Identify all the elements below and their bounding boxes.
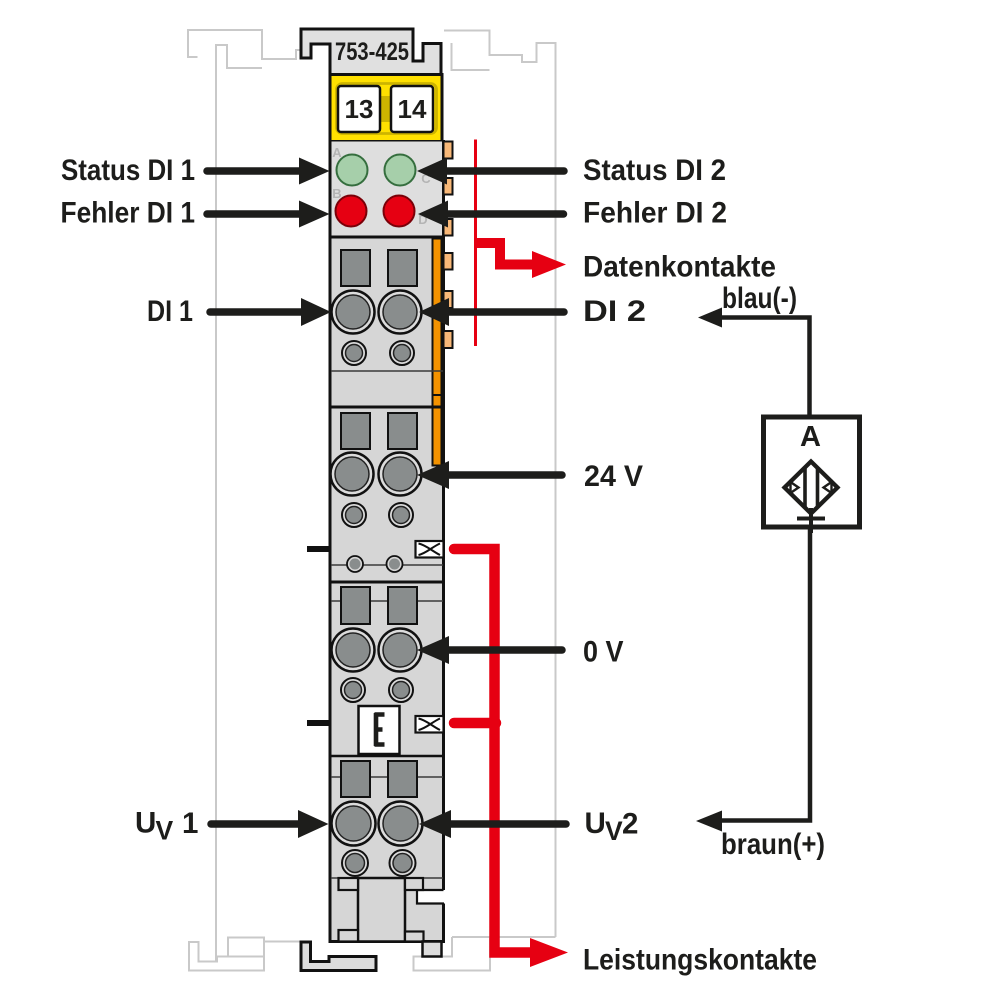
svg-text:Status DI 2: Status DI 2	[583, 154, 726, 187]
svg-text:0 V: 0 V	[583, 636, 624, 669]
svg-text:Fehler DI 2: Fehler DI 2	[583, 197, 727, 230]
svg-text:13: 13	[345, 94, 374, 124]
svg-text:24 V: 24 V	[584, 460, 643, 493]
svg-text:B: B	[332, 186, 341, 201]
svg-text:14: 14	[398, 94, 427, 124]
svg-text:braun(+): braun(+)	[721, 828, 825, 861]
svg-text:Datenkontakte: Datenkontakte	[583, 251, 776, 284]
svg-text:A: A	[332, 145, 342, 160]
svg-text:Fehler DI 1: Fehler DI 1	[61, 197, 196, 230]
svg-text:blau(-): blau(-)	[722, 282, 797, 315]
svg-text:DI 2: DI 2	[583, 295, 646, 328]
svg-text:Leistungskontakte: Leistungskontakte	[583, 944, 817, 977]
svg-text:Status DI 1: Status DI 1	[61, 154, 195, 187]
svg-text:753-425: 753-425	[335, 38, 409, 66]
svg-text:DI 1: DI 1	[147, 295, 193, 328]
svg-text:A: A	[800, 421, 821, 453]
